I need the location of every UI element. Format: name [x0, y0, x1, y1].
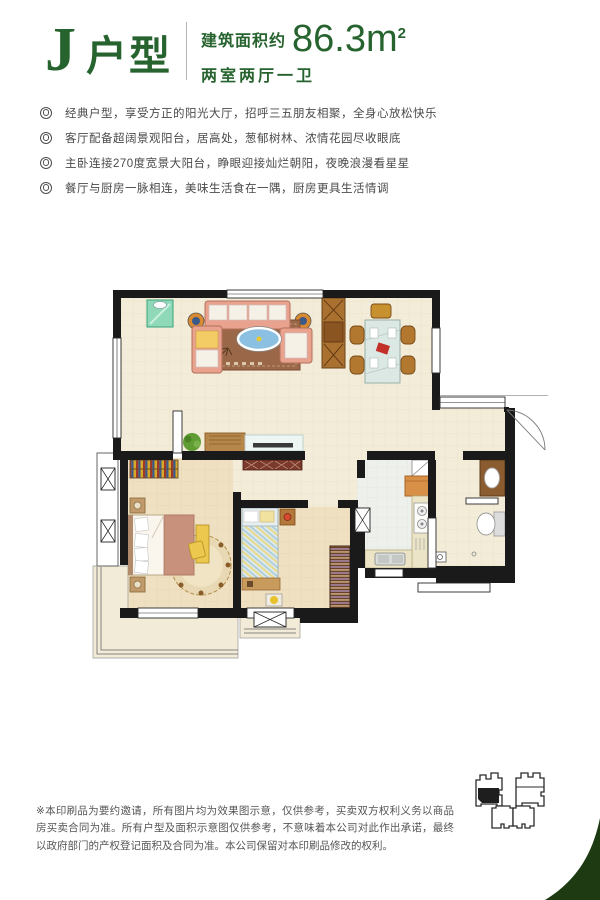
basin: [485, 468, 500, 488]
corner-decoration: [530, 810, 600, 900]
feature-item: 主卧连接270度宽景大阳台，睁眼迎接灿烂朝阳，夜晚浪漫看星星: [40, 150, 520, 175]
floor-plan-container: [38, 278, 548, 668]
area-superscript: 2: [398, 25, 406, 42]
unit-type-label: 户型: [86, 26, 172, 86]
feature-text: 主卧连接270度宽景大阳台，睁眼迎接灿烂朝阳，夜晚浪漫看星星: [65, 155, 410, 171]
header: J 户型 建筑面积约 86.3m 2 两室两厅一卫: [45, 18, 406, 88]
feature-text: 餐厅与厨房一脉相连，美味生活食在一隅，厨房更具生活情调: [65, 180, 389, 196]
area-value: 86.3m: [292, 22, 398, 56]
area-prefix: 建筑面积约: [201, 27, 286, 56]
unit-name: J 户型: [45, 18, 172, 86]
bullseye-icon: [40, 107, 52, 119]
bullseye-icon: [40, 157, 52, 169]
feature-item: 餐厅与厨房一脉相连，美味生活食在一隅，厨房更具生活情调: [40, 175, 520, 200]
bullseye-icon: [40, 182, 52, 194]
feature-item: 经典户型，享受方正的阳光大厅，招呼三五朋友相聚，全身心放松快乐: [40, 100, 520, 125]
feature-list: 经典户型，享受方正的阳光大厅，招呼三五朋友相聚，全身心放松快乐 客厅配备超阔景观…: [40, 100, 520, 200]
wardrobe: [330, 546, 350, 608]
dining-chair: [401, 356, 415, 374]
floor-plan: [38, 278, 548, 668]
unit-outline-top-right: [516, 773, 544, 806]
bullseye-icon: [40, 132, 52, 144]
header-divider: [186, 22, 187, 80]
page: J 户型 建筑面积约 86.3m 2 两室两厅一卫 经典户型，享受方正的阳光大厅…: [0, 0, 600, 900]
feature-text: 经典户型，享受方正的阳光大厅，招呼三五朋友相聚，全身心放松快乐: [65, 105, 437, 121]
dining-chair: [350, 356, 364, 374]
dining-chair: [350, 326, 364, 344]
feature-item: 客厅配备超阔景观阳台，居高处，葱郁树林、浓情花园尽收眼底: [40, 125, 520, 150]
tv: [253, 443, 293, 448]
fridge: [405, 476, 430, 496]
feature-text: 客厅配备超阔景观阳台，居高处，葱郁树林、浓情花园尽收眼底: [65, 130, 401, 146]
dining-chair: [401, 326, 415, 344]
unit-outline-bottom-left: [492, 806, 513, 828]
area-line: 建筑面积约 86.3m 2: [201, 22, 406, 56]
disclaimer-text: ※本印刷品为要约邀请，所有图片均为效果图示意，仅供参考，买卖双方权利义务以商品房…: [36, 803, 454, 856]
unit-letter: J: [45, 18, 76, 82]
toilet-bowl: [477, 513, 495, 535]
toilet-tank: [494, 512, 505, 536]
room-layout-text: 两室两厅一卫: [201, 62, 406, 86]
highlighted-unit: [478, 788, 499, 803]
dining-chair: [371, 304, 391, 318]
header-right: 建筑面积约 86.3m 2 两室两厅一卫: [201, 18, 406, 86]
